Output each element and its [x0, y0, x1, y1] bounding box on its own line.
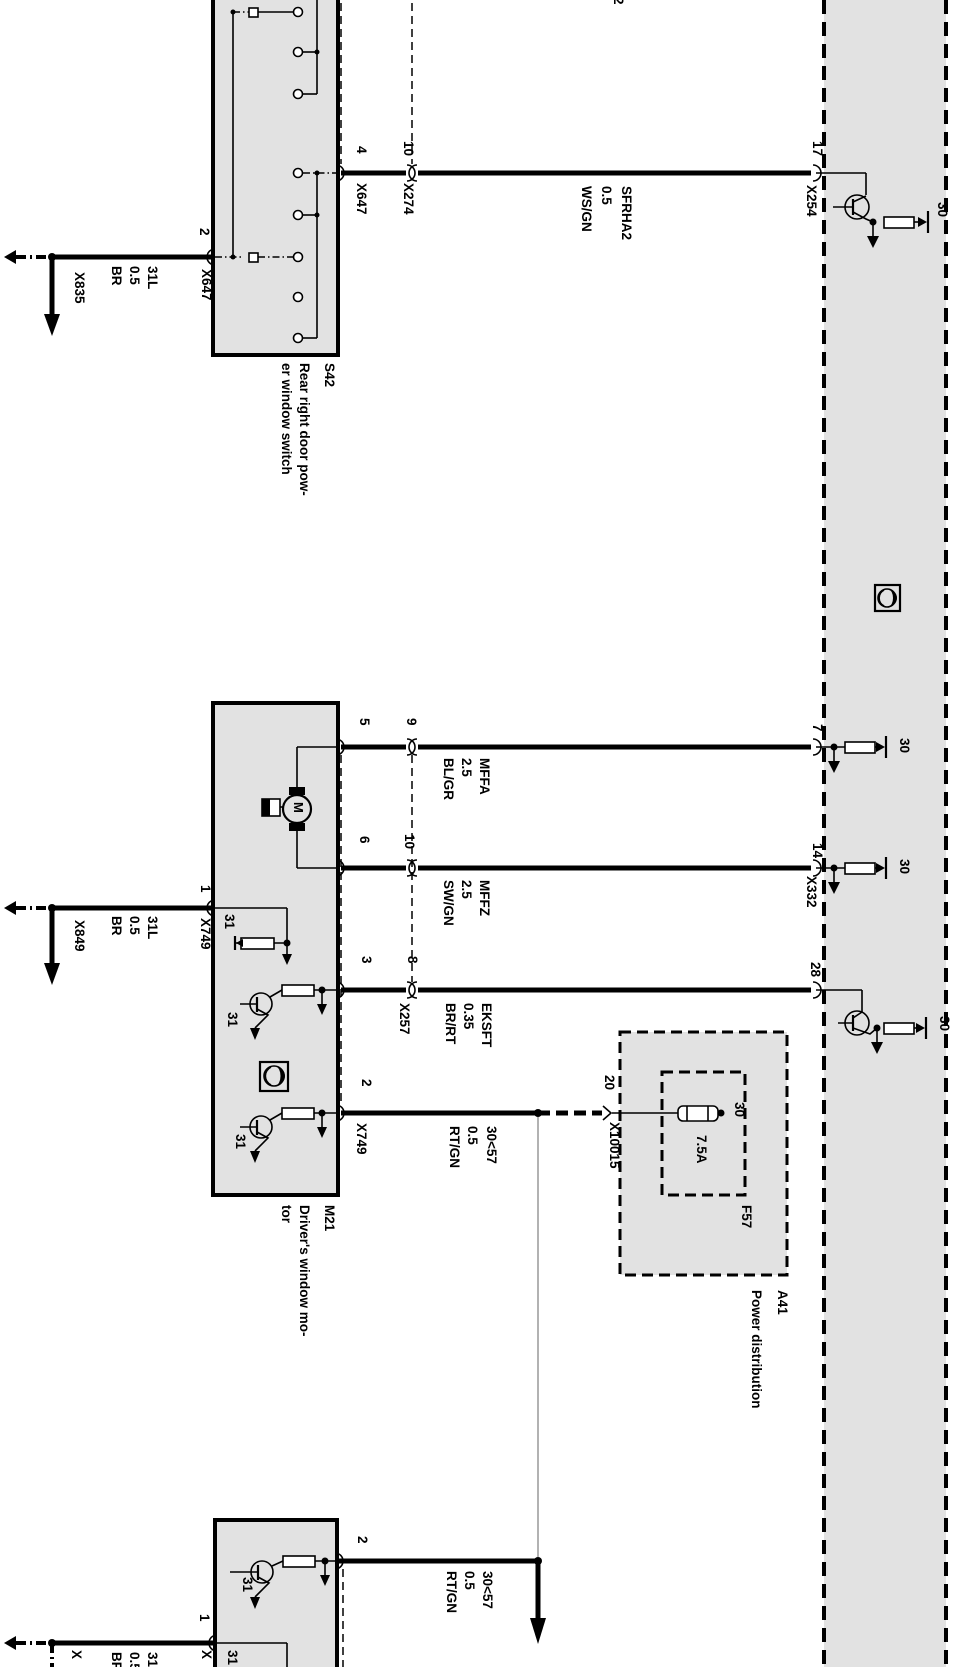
connector-label-x749-a: X749: [198, 918, 213, 950]
wire-color-top: BR: [109, 266, 124, 286]
wire-name-eksft: EKSFT: [479, 1003, 494, 1048]
motor-brush-top: [289, 787, 305, 795]
component-desc-s42-2: er window switch: [279, 363, 294, 475]
wire-name-rtgn-bottom: 30<57: [480, 1571, 495, 1609]
s42-contact-1: [294, 8, 303, 17]
pin-label-s42-4: 4: [354, 146, 369, 154]
wire-gauge-top: 0.5: [127, 266, 142, 285]
connector-label-x257: X257: [397, 1003, 412, 1035]
resistor: [282, 1108, 314, 1119]
component-desc-m21-2: tor: [279, 1205, 294, 1224]
s42-box: [213, 0, 338, 355]
wire-color-bottom-cut: BR: [109, 1652, 124, 1667]
wire-name-sfrha2: SFRHA2: [619, 186, 634, 240]
connector-label-bottom-cut-b: X: [69, 1650, 84, 1659]
junction-dot: [231, 255, 236, 260]
junction-dot: [315, 213, 320, 218]
pin-label-s42-2: 2: [197, 228, 212, 236]
resistor: [845, 863, 875, 874]
component-desc-m21-1: Driver's window mo-: [297, 1205, 312, 1336]
ground-mid: [4, 900, 215, 985]
s42-contact-5: [294, 211, 303, 220]
s42-contact-3: [294, 90, 303, 99]
connector-label-x647-b: X647: [354, 183, 369, 215]
s42-contact-8: [294, 334, 303, 343]
fuse-icon: [678, 1106, 718, 1121]
terminal-label-30-c: 30: [897, 859, 912, 874]
junction-dot: [231, 10, 236, 15]
wire-sfrha2: [336, 165, 821, 181]
wire-gauge-rtgn-mid: 0.5: [465, 1126, 480, 1145]
wire-gauge-sfrha2: 0.5: [599, 186, 614, 205]
resistor: [283, 1556, 315, 1567]
wire-rtgn-mid: [336, 1105, 611, 1557]
wire-name-mffz: MFFZ: [477, 880, 492, 916]
wire-name-31l-mid: 31L: [145, 916, 160, 939]
connector-label-x274: X274: [401, 183, 416, 215]
pin-label-5: 5: [357, 718, 372, 726]
junction-dot: [315, 171, 320, 176]
connector-label-x10015: X10015: [607, 1122, 622, 1169]
resistor: [845, 742, 875, 753]
resistor: [241, 938, 274, 949]
wire-color-rtgn-mid: RT/GN: [447, 1126, 462, 1168]
terminal-label-30-b: 30: [897, 738, 912, 753]
pin-label-9: 9: [404, 718, 419, 726]
wire-name-rtgn-mid: 30<57: [484, 1126, 499, 1164]
pin-label-bottom-1: 1: [197, 1614, 212, 1622]
motor-connector-fill: [262, 799, 270, 816]
component-id-s42: S42: [322, 363, 337, 387]
wire-gauge-rtgn-bottom: 0.5: [462, 1571, 477, 1590]
motor-brush-bottom: [289, 823, 305, 831]
splice-arrow: [44, 314, 60, 336]
component-id-m21: M21: [322, 1205, 337, 1232]
wire-color-mffa: BL/GR: [441, 758, 456, 800]
wire-color-sfrha2: WS/GN: [579, 186, 594, 232]
resistor: [884, 217, 914, 228]
m21-box: [213, 703, 338, 1195]
pin-label-7: 7: [810, 724, 825, 732]
pin-label-6: 6: [357, 836, 372, 844]
pin-label-10-top: 10: [401, 141, 416, 156]
component-id-f57: F57: [739, 1205, 754, 1228]
m21-motor-block: [213, 703, 338, 1195]
terminal-label-31-c: 31: [233, 1134, 248, 1150]
s42-contact-7: [294, 293, 303, 302]
terminal-label-30-a: 30: [935, 202, 950, 217]
control-module-column: [824, 0, 946, 1667]
wiring-diagram: 2 2 X647 31L 0.5 BR X835 4 X647 10 X274 …: [0, 0, 956, 1667]
connector-label-x749-b: X749: [354, 1123, 369, 1155]
connector-label-bottom-cut-a: X: [199, 1650, 214, 1659]
component-desc-a41: Power distribution: [749, 1290, 764, 1409]
component-id-a41: A41: [775, 1290, 790, 1315]
ground-triangle: [4, 1636, 16, 1650]
terminal-label-31-bottom: 31: [240, 1577, 255, 1593]
pin-label-10-mid: 10: [402, 834, 417, 849]
s42-contact-2: [294, 48, 303, 57]
pin-label-m21-2: 2: [359, 1079, 374, 1087]
connector-label-x647-a: X647: [199, 269, 214, 301]
bottom-motor-block: [215, 1520, 343, 1667]
wire-mffa: [336, 739, 821, 755]
wire-color-mid: BR: [109, 916, 124, 936]
wire-gauge-mffz: 2.5: [459, 880, 474, 899]
connector-fork: [603, 1106, 611, 1120]
pin-label-20: 20: [602, 1075, 617, 1090]
resistor: [282, 985, 314, 996]
pin-label-17: 17: [810, 141, 825, 156]
terminal-label-30-fuse: 30: [732, 1102, 747, 1117]
connector-label-x332: X332: [804, 876, 819, 908]
connector-label-x254: X254: [804, 185, 819, 217]
s42-contact-square-1: [249, 8, 258, 17]
wire-gauge-mid: 0.5: [127, 916, 142, 935]
wire-eksft: [336, 982, 821, 998]
resistor: [884, 1023, 914, 1034]
junction-dot: [718, 1110, 725, 1117]
wire-gauge-bottom-cut: 0.5: [127, 1652, 142, 1667]
terminal-label-31-bottom-cut: 31: [225, 1650, 240, 1666]
wire-name-31l-bottom-cut: 31L: [145, 1652, 160, 1667]
s42-switch-block: [213, 0, 338, 355]
connector-label-x835: X835: [72, 272, 87, 304]
pin-label-top-cut: 2: [611, 0, 626, 5]
wire-gauge-mffa: 2.5: [459, 758, 474, 777]
wire-name-31l-top: 31L: [145, 266, 160, 289]
junction-dot: [315, 50, 320, 55]
labels: 2 2 X647 31L 0.5 BR X835 4 X647 10 X274 …: [69, 0, 952, 1667]
pin-label-8: 8: [405, 956, 420, 964]
ground-triangle: [4, 901, 16, 915]
fuse-rating-label: 7.5A: [694, 1135, 709, 1164]
terminal-label-30-d: 30: [937, 1016, 952, 1031]
s42-contact-square-2: [249, 253, 258, 262]
connector-label-x849: X849: [72, 920, 87, 952]
pin-label-m21-1: 1: [198, 885, 213, 893]
wire-gauge-eksft: 0.35: [461, 1003, 476, 1030]
component-desc-s42-1: Rear right door pow-: [297, 363, 312, 496]
pin-label-3: 3: [359, 956, 374, 964]
module-column-fill: [824, 0, 946, 1667]
terminal-label-31-b: 31: [225, 1012, 240, 1028]
bottom-box: [215, 1520, 337, 1667]
wire-rtgn-bottom: [335, 1553, 546, 1644]
pin-label-14: 14: [810, 843, 825, 859]
ground-triangle: [4, 250, 16, 264]
pin-label-28: 28: [808, 962, 823, 978]
terminal-label-31-a: 31: [222, 914, 237, 930]
s42-contact-4: [294, 169, 303, 178]
splice-arrow: [44, 963, 60, 985]
wire-name-mffa: MFFA: [477, 758, 492, 795]
junction-dot: [534, 1109, 542, 1117]
pin-label-bottom-2: 2: [355, 1536, 370, 1544]
wire-color-rtgn-bottom: RT/GN: [444, 1571, 459, 1613]
wire-color-mffz: SW/GN: [441, 880, 456, 926]
splice-arrow: [530, 1618, 546, 1644]
motor-letter: M: [291, 802, 306, 813]
s42-contact-6: [294, 253, 303, 262]
wire-mffz: [336, 860, 821, 876]
ground-top: [4, 249, 215, 336]
wiring-diagram-page: 2 2 X647 31L 0.5 BR X835 4 X647 10 X274 …: [0, 0, 956, 1667]
wire-color-eksft: BR/RT: [443, 1003, 458, 1045]
